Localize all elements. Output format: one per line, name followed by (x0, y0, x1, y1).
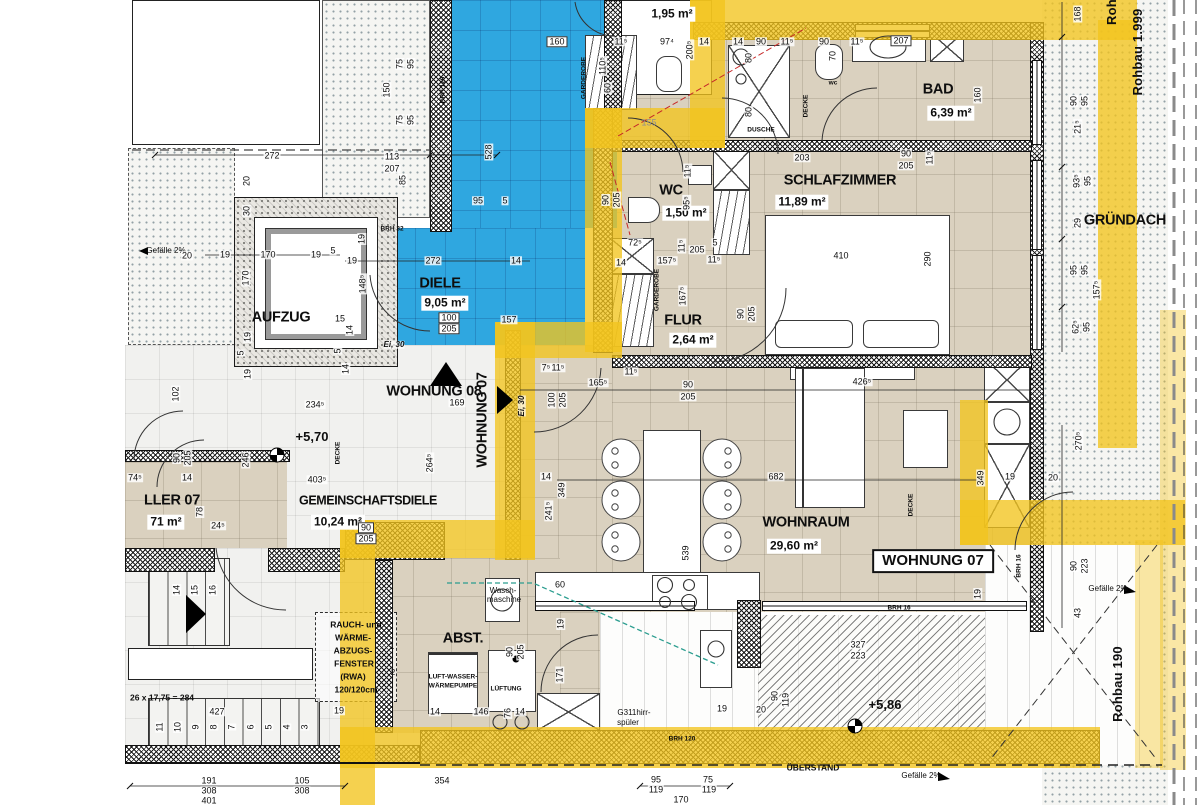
dim-label: 157⁵ (1092, 280, 1101, 301)
dim-label: 119 (701, 785, 717, 794)
room-label-diele: DIELE (419, 276, 460, 291)
dim-label: 11⁵ (925, 150, 934, 165)
dim-label: 160 (546, 36, 567, 47)
dim-label: DECKE (804, 95, 811, 118)
dim-label: 205 (558, 391, 567, 408)
dim-label: 5 (236, 349, 245, 356)
dim-label: 95 (1069, 264, 1078, 276)
dim-label: spüler (617, 719, 639, 727)
dim-label: 171 (555, 666, 564, 683)
dim-label: 241⁵ (544, 501, 553, 522)
room-label-bad: BAD (923, 82, 954, 97)
dim-label: 95 (406, 114, 415, 126)
dim-label: 60 (603, 82, 612, 94)
room-label-flur: FLUR (664, 313, 701, 328)
dim-label: 14 (732, 37, 744, 46)
dim-label: wc (829, 81, 838, 88)
entry-arrow-wohnung07 (497, 386, 513, 414)
dim-label: 410 (832, 251, 849, 260)
dim-label: 160 (973, 86, 982, 103)
dim-label: 170 (259, 250, 276, 259)
dim-label: 207 (383, 164, 400, 173)
dim-label: 205 (747, 305, 756, 322)
dim-label: 19 (357, 233, 366, 245)
dim-label: 270⁵ (1074, 431, 1083, 452)
room-label-schlafzimmer: SCHLAFZIMMER (784, 173, 896, 188)
dim-label: 223 (1080, 557, 1089, 574)
dim-label: 155 (641, 118, 656, 127)
dim-label: 71 m² (147, 515, 184, 530)
dim-label: 170 (241, 269, 250, 286)
dim-label: 167⁵ (678, 286, 687, 307)
dim-label: Roh (1105, 0, 1119, 25)
dim-label: 16 (208, 584, 217, 596)
room-label-aufzug: AUFZUG (252, 310, 311, 325)
dim-label: 14 (341, 363, 350, 375)
dim-label: maschine (487, 596, 521, 604)
dim-label: 95 (472, 196, 484, 205)
dim-label: 6 (246, 723, 255, 730)
dim-label: 205 (679, 392, 696, 401)
level-symbol-586 (848, 719, 862, 733)
dim-label: 78 (195, 506, 204, 518)
dim-label: 203 (793, 153, 810, 162)
dim-label: 19 (333, 706, 345, 715)
dim-label: Gefälle 2% (901, 772, 940, 780)
dim-label: 75 (395, 114, 404, 126)
dim-label: 95⁵ (682, 195, 691, 211)
dim-label: LUFT-WASSER- (429, 675, 478, 682)
dim-label: 93⁵ (1072, 173, 1081, 189)
dim-label: 427 (208, 707, 225, 716)
dim-label: 349 (976, 469, 985, 486)
dim-label: 113 (384, 152, 400, 161)
dim-label: 14 (181, 473, 193, 482)
dim-label: 14 (540, 472, 552, 481)
dim-label: 119 (648, 785, 664, 794)
unit-label-wohnung-07-rot: WOHNUNG 07 (475, 372, 490, 467)
dim-label: 682 (767, 472, 784, 481)
dim-label: 1 (390, 643, 394, 651)
dim-label: GARDEROBE (655, 269, 662, 311)
dim-label: Ei, 30 (384, 341, 405, 349)
unit-label-wohnung-08: WOHNUNG 08 (386, 384, 481, 399)
dim-label: 11⁵ (550, 363, 565, 372)
dim-label: DUSCHE (747, 128, 774, 135)
dim-label: 95 (1082, 321, 1091, 333)
dim-label: 14 (698, 37, 710, 46)
dim-label: 2,64 m² (669, 333, 716, 348)
dim-label: 169 (448, 398, 465, 407)
dim-label: 19 (243, 331, 252, 343)
dim-label: 14 (510, 256, 522, 265)
level-570: +5,70 (296, 430, 329, 444)
dim-label: 60 (554, 580, 566, 589)
stair-direction-arrow (186, 595, 206, 633)
dim-label: 327 (849, 640, 866, 649)
dim-label: WÄRMEPUMPE (429, 684, 477, 691)
dim-label: 150 (382, 81, 391, 98)
note-stair-formula: 26 x 17,75 = 284 (130, 694, 194, 703)
room-label-gemeinschaftsdiele: GEMEINSCHAFTSDIELE (299, 494, 437, 507)
dim-label: 2 (391, 669, 395, 677)
dim-label: 100 (547, 391, 556, 408)
dim-label: 11⁵ (849, 37, 864, 46)
dim-label: 95 (1080, 264, 1089, 276)
dim-label: ABZUGS- (334, 647, 373, 656)
dim-label: GARDEROBE (582, 57, 589, 99)
dim-label: 72⁵ (627, 238, 643, 247)
dim-label: FENSTER (334, 660, 374, 669)
dim-label: Ei, 30 (518, 396, 526, 417)
dim-label: 539 (681, 544, 690, 561)
dim-label: (RWA) (340, 673, 365, 682)
dim-label: 90 (770, 690, 779, 702)
dim-label: 90 (601, 194, 610, 206)
dim-label: 3 (300, 723, 309, 730)
level-symbol-570 (270, 448, 284, 462)
dining-chairs (602, 439, 741, 561)
dim-label: 9 (191, 723, 200, 730)
dim-label: 120/120cm (334, 686, 377, 695)
dim-label: 170 (672, 795, 689, 804)
entry-arrow-wohnung08 (430, 362, 462, 386)
dim-label: 11,89 m² (775, 195, 828, 210)
dim-label: 102 (171, 385, 180, 402)
appliance-details (491, 36, 1020, 729)
dim-label: 95 (406, 58, 415, 70)
dim-label: 6,39 m² (927, 106, 974, 121)
dim-label: LÜFTUNG (490, 687, 521, 694)
dim-label: 90 (900, 149, 912, 158)
dim-label: G311hirr- (617, 709, 650, 717)
room-label-wohnraum: WOHNRAUM (762, 515, 849, 530)
dim-label: 5 (333, 347, 342, 354)
dim-label: 20 (242, 175, 251, 187)
dim-label: RAUCH- und (330, 621, 381, 630)
dim-label: 205 (897, 161, 914, 170)
dim-label: 85 (398, 174, 407, 186)
dim-label: 264⁵ (425, 453, 434, 474)
room-label-wc: WC (659, 183, 683, 198)
dim-label: 5 (501, 196, 508, 205)
dim-label: 157⁵ (657, 256, 678, 265)
dim-label: 95 (1083, 175, 1092, 187)
dim-label: 5 (264, 723, 273, 730)
dim-label: 223 (849, 651, 866, 660)
dim-label: 290 (923, 250, 932, 267)
dim-label: 14 (514, 707, 526, 716)
dim-label: 8 (209, 723, 218, 730)
dim-label: 119 (781, 692, 790, 708)
dim-label: 90 (818, 37, 830, 46)
dim-label: 165⁵ (588, 378, 609, 387)
dim-label: 29 (1073, 217, 1082, 229)
dim-label: 349 (557, 481, 566, 498)
dim-label: 30 (242, 205, 251, 217)
level-586: +5,86 (869, 698, 902, 712)
dim-label: 234⁵ (305, 400, 326, 409)
dim-label: 205 (688, 245, 705, 254)
dim-label: 157 (500, 315, 517, 324)
dim-label: 11⁵ (706, 255, 721, 264)
dim-label: BRH 16 (1017, 554, 1024, 577)
dim-label: 14 (615, 258, 627, 267)
room-area-diele: 9,05 m² (421, 296, 468, 311)
dim-label: 11⁵ (779, 37, 794, 46)
dim-label: 11⁵ (683, 163, 692, 178)
dim-label: 14 (345, 324, 354, 336)
dim-label: 205 (355, 533, 376, 544)
room-area-wc2: 1,95 m² (648, 7, 695, 22)
room-label-keller: LLER 07 (144, 493, 200, 508)
dim-label: 97⁴ (659, 37, 675, 46)
dim-label: BRH 16 (887, 606, 910, 613)
dim-label: 76 (503, 707, 512, 719)
dim-label: 19 (243, 368, 252, 380)
dim-label: 14 (429, 707, 441, 716)
dim-label: 528 (484, 143, 493, 160)
dim-label: 19 (310, 250, 322, 259)
dim-label: 246 (241, 451, 250, 468)
dim-label: WÄRME- (335, 634, 371, 643)
dim-label: 4 (282, 723, 291, 730)
dim-label: 90 (172, 452, 181, 464)
dim-label: 10,24 m² (311, 515, 365, 530)
dim-label: 146 (472, 707, 489, 716)
room-label-gruendach: GRÜNDACH (1084, 213, 1166, 228)
dim-label: 148⁵ (358, 274, 367, 295)
dim-label: 272 (424, 256, 441, 265)
dim-label: 43 (1073, 607, 1082, 619)
dim-label: 207 (890, 35, 911, 46)
dim-label: Gefälle 2% (146, 247, 185, 255)
dim-label: 19 (973, 588, 982, 600)
dim-label: 19 (346, 256, 358, 265)
dim-label: 205 (612, 191, 621, 208)
dim-label: 80 (744, 52, 753, 64)
dim-label: 90 (1069, 560, 1078, 572)
dim-label: 5 (711, 238, 718, 247)
dim-label: DECKE (336, 442, 343, 465)
dim-label: Gefälle 2% (1088, 585, 1127, 593)
dim-label: 20 (1047, 473, 1059, 482)
dim-label: 20 (181, 251, 193, 260)
dim-label: 308 (293, 786, 310, 795)
room-label-abst: ABST. (443, 631, 483, 646)
dim-label: 401 (200, 796, 217, 805)
dim-label: DECKE (909, 494, 916, 517)
dim-label: 74⁵ (127, 473, 143, 482)
dim-label: 5 (329, 246, 336, 255)
dim-label: 11⁵ (677, 238, 686, 253)
dim-label: 14 (172, 584, 181, 596)
dim-label: 205 (516, 643, 525, 660)
dim-label: 272 (263, 151, 280, 160)
dim-label: 11⁵ (623, 367, 638, 376)
dim-label: BRH 120 (441, 77, 448, 104)
dim-label: 95 (1080, 95, 1089, 107)
dim-label: 90 (1069, 95, 1078, 107)
dimension-ticks (127, 34, 1065, 789)
dim-label: BRH 120 (669, 737, 696, 744)
dim-label: 426⁵ (852, 377, 873, 386)
dim-label: 168 (1073, 5, 1082, 22)
dim-label: 100 (438, 312, 459, 323)
dim-label: 19 (716, 704, 728, 713)
dim-label: 15 (190, 584, 199, 596)
dim-label: 90 (682, 380, 694, 389)
dim-label: 11⁵ (613, 37, 628, 46)
dim-label: 90 (736, 308, 745, 320)
dim-label: 24⁵ (210, 521, 226, 530)
floor-plan: 2721132078515075957595BRH 120528955Gefäl… (0, 0, 1200, 805)
dim-label: 11 (155, 721, 164, 732)
dim-label: 75 (395, 58, 404, 70)
dim-label: 19 (1004, 472, 1016, 481)
unit-label-wohnung-07: WOHNUNG 07 (872, 549, 994, 573)
dim-label: 403⁵ (307, 475, 328, 484)
dim-label: 20 (755, 705, 767, 714)
dim-label: 7 (227, 723, 236, 730)
dim-label: 10 (173, 721, 182, 733)
dim-label: 80 (744, 106, 753, 118)
dim-label: 19 (219, 250, 231, 259)
dim-label: BRH 32 (380, 227, 403, 234)
dim-label: 90 (755, 37, 767, 46)
dim-label: 15 (334, 314, 346, 323)
note-rohbau-1999: Rohbau 1.999 (1131, 9, 1145, 96)
dim-label: 90 (358, 522, 374, 533)
dim-label: 29,60 m² (767, 539, 821, 554)
dim-label: 354 (433, 776, 450, 785)
dim-label: 70 (828, 50, 837, 62)
dim-label: 21⁵ (1073, 119, 1082, 135)
dim-label: 19 (556, 618, 565, 630)
dim-label: 62⁵ (1071, 319, 1080, 335)
dim-label: 110⁵ (598, 56, 607, 76)
note-ueberstand: ÜBERSTAND (787, 764, 840, 773)
dim-label: 200⁵ (685, 40, 694, 61)
dimension-lines (130, 2, 1062, 786)
dim-label: 90 (505, 646, 514, 658)
dim-label: 205 (183, 449, 192, 466)
dim-label: 205 (438, 323, 459, 334)
note-rohbau-190: Rohbau 190 (1111, 646, 1125, 722)
